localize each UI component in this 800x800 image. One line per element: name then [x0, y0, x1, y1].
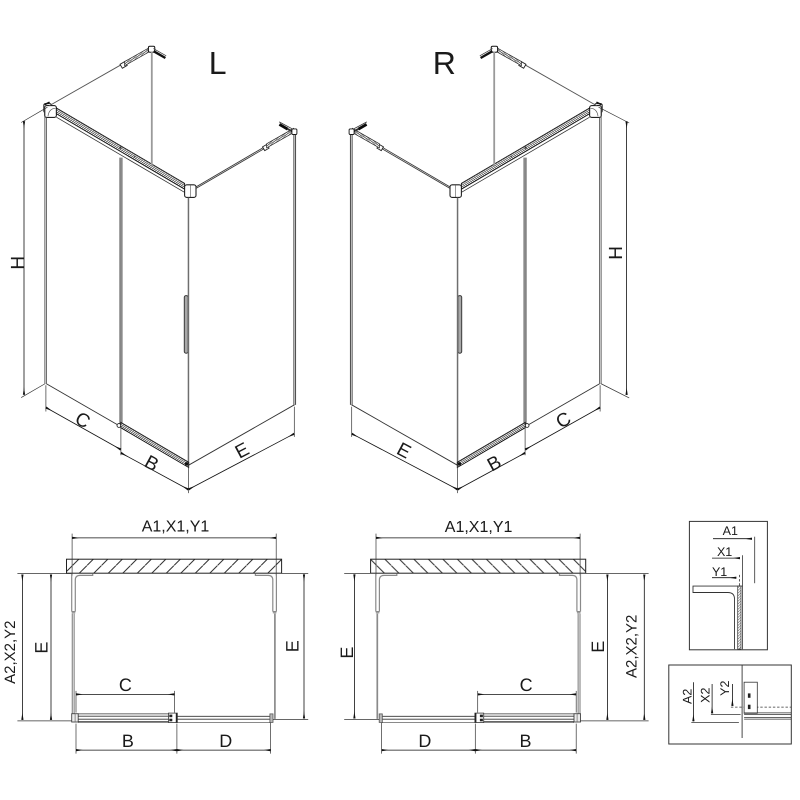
svg-text:H: H: [606, 246, 627, 260]
svg-text:Y2: Y2: [718, 681, 732, 696]
svg-text:E: E: [32, 642, 52, 654]
svg-text:A1: A1: [723, 524, 738, 538]
svg-text:E: E: [283, 640, 303, 652]
svg-text:B: B: [519, 731, 531, 751]
svg-text:B: B: [122, 731, 134, 751]
svg-text:X2: X2: [698, 688, 712, 703]
svg-text:L: L: [209, 45, 227, 81]
svg-text:C: C: [119, 675, 132, 695]
svg-text:A2: A2: [681, 689, 695, 704]
svg-text:E: E: [337, 647, 357, 659]
svg-text:E: E: [588, 641, 608, 653]
svg-text:A2,X2,Y2: A2,X2,Y2: [2, 621, 19, 684]
svg-text:R: R: [433, 45, 456, 81]
svg-text:A1,X1,Y1: A1,X1,Y1: [142, 519, 210, 536]
svg-text:Y1: Y1: [712, 565, 727, 579]
svg-text:X1: X1: [717, 545, 732, 559]
svg-text:D: D: [219, 731, 232, 751]
svg-text:C: C: [520, 675, 533, 695]
svg-text:D: D: [418, 731, 431, 751]
svg-text:A2,X2,Y2: A2,X2,Y2: [624, 615, 641, 678]
svg-text:A1,X1,Y1: A1,X1,Y1: [445, 519, 513, 536]
svg-text:H: H: [8, 256, 29, 270]
